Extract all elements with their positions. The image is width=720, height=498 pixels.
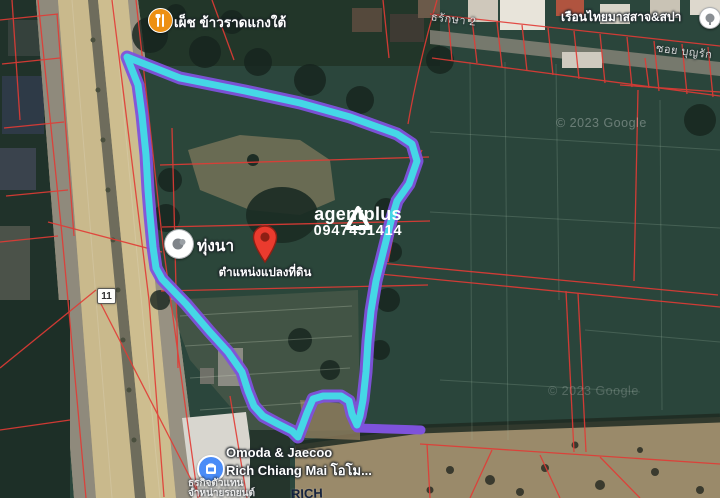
- field-poi-label[interactable]: ทุ่งนา: [197, 233, 234, 258]
- restaurant-label[interactable]: เผ็ช ข้าวราดแกงใต้: [174, 11, 286, 33]
- map-imagery: [0, 0, 720, 498]
- dealership-label-line1[interactable]: Omoda & Jaecoo: [226, 445, 332, 460]
- agentplus-watermark: agentplus 0947451414: [308, 205, 408, 240]
- highway-badge-number: 11: [101, 291, 112, 302]
- restaurant-icon[interactable]: [148, 8, 173, 33]
- spa-glyph: [700, 8, 720, 28]
- dealership-sub2: จำหน่ายรถยนต์: [188, 486, 255, 498]
- fork-knife-glyph: [149, 9, 172, 32]
- dealership-label-line2[interactable]: Rich Chiang Mai โอโม...: [226, 460, 372, 481]
- highway-badge: 11: [97, 288, 116, 304]
- map-attribution-2: © 2023 Google: [548, 384, 639, 398]
- pin-caption: ตำแหน่งแปลงที่ดิน: [212, 264, 318, 282]
- agentplus-triangle-icon: [308, 205, 408, 231]
- field-poi-icon[interactable]: [164, 229, 194, 259]
- nature-glyph: [165, 230, 193, 258]
- satellite-map[interactable]: เผ็ช ข้าวราดแกงใต้ ธรักษา 2 เรือนไทยมาสส…: [0, 0, 720, 498]
- map-attribution: © 2023 Google: [556, 116, 647, 130]
- spa-icon[interactable]: [699, 7, 720, 29]
- pin-icon: [251, 224, 279, 264]
- rich-roof-sign: RICH: [291, 485, 323, 498]
- spa-label[interactable]: เรือนไทยมาสสาจ&สปา: [561, 8, 681, 27]
